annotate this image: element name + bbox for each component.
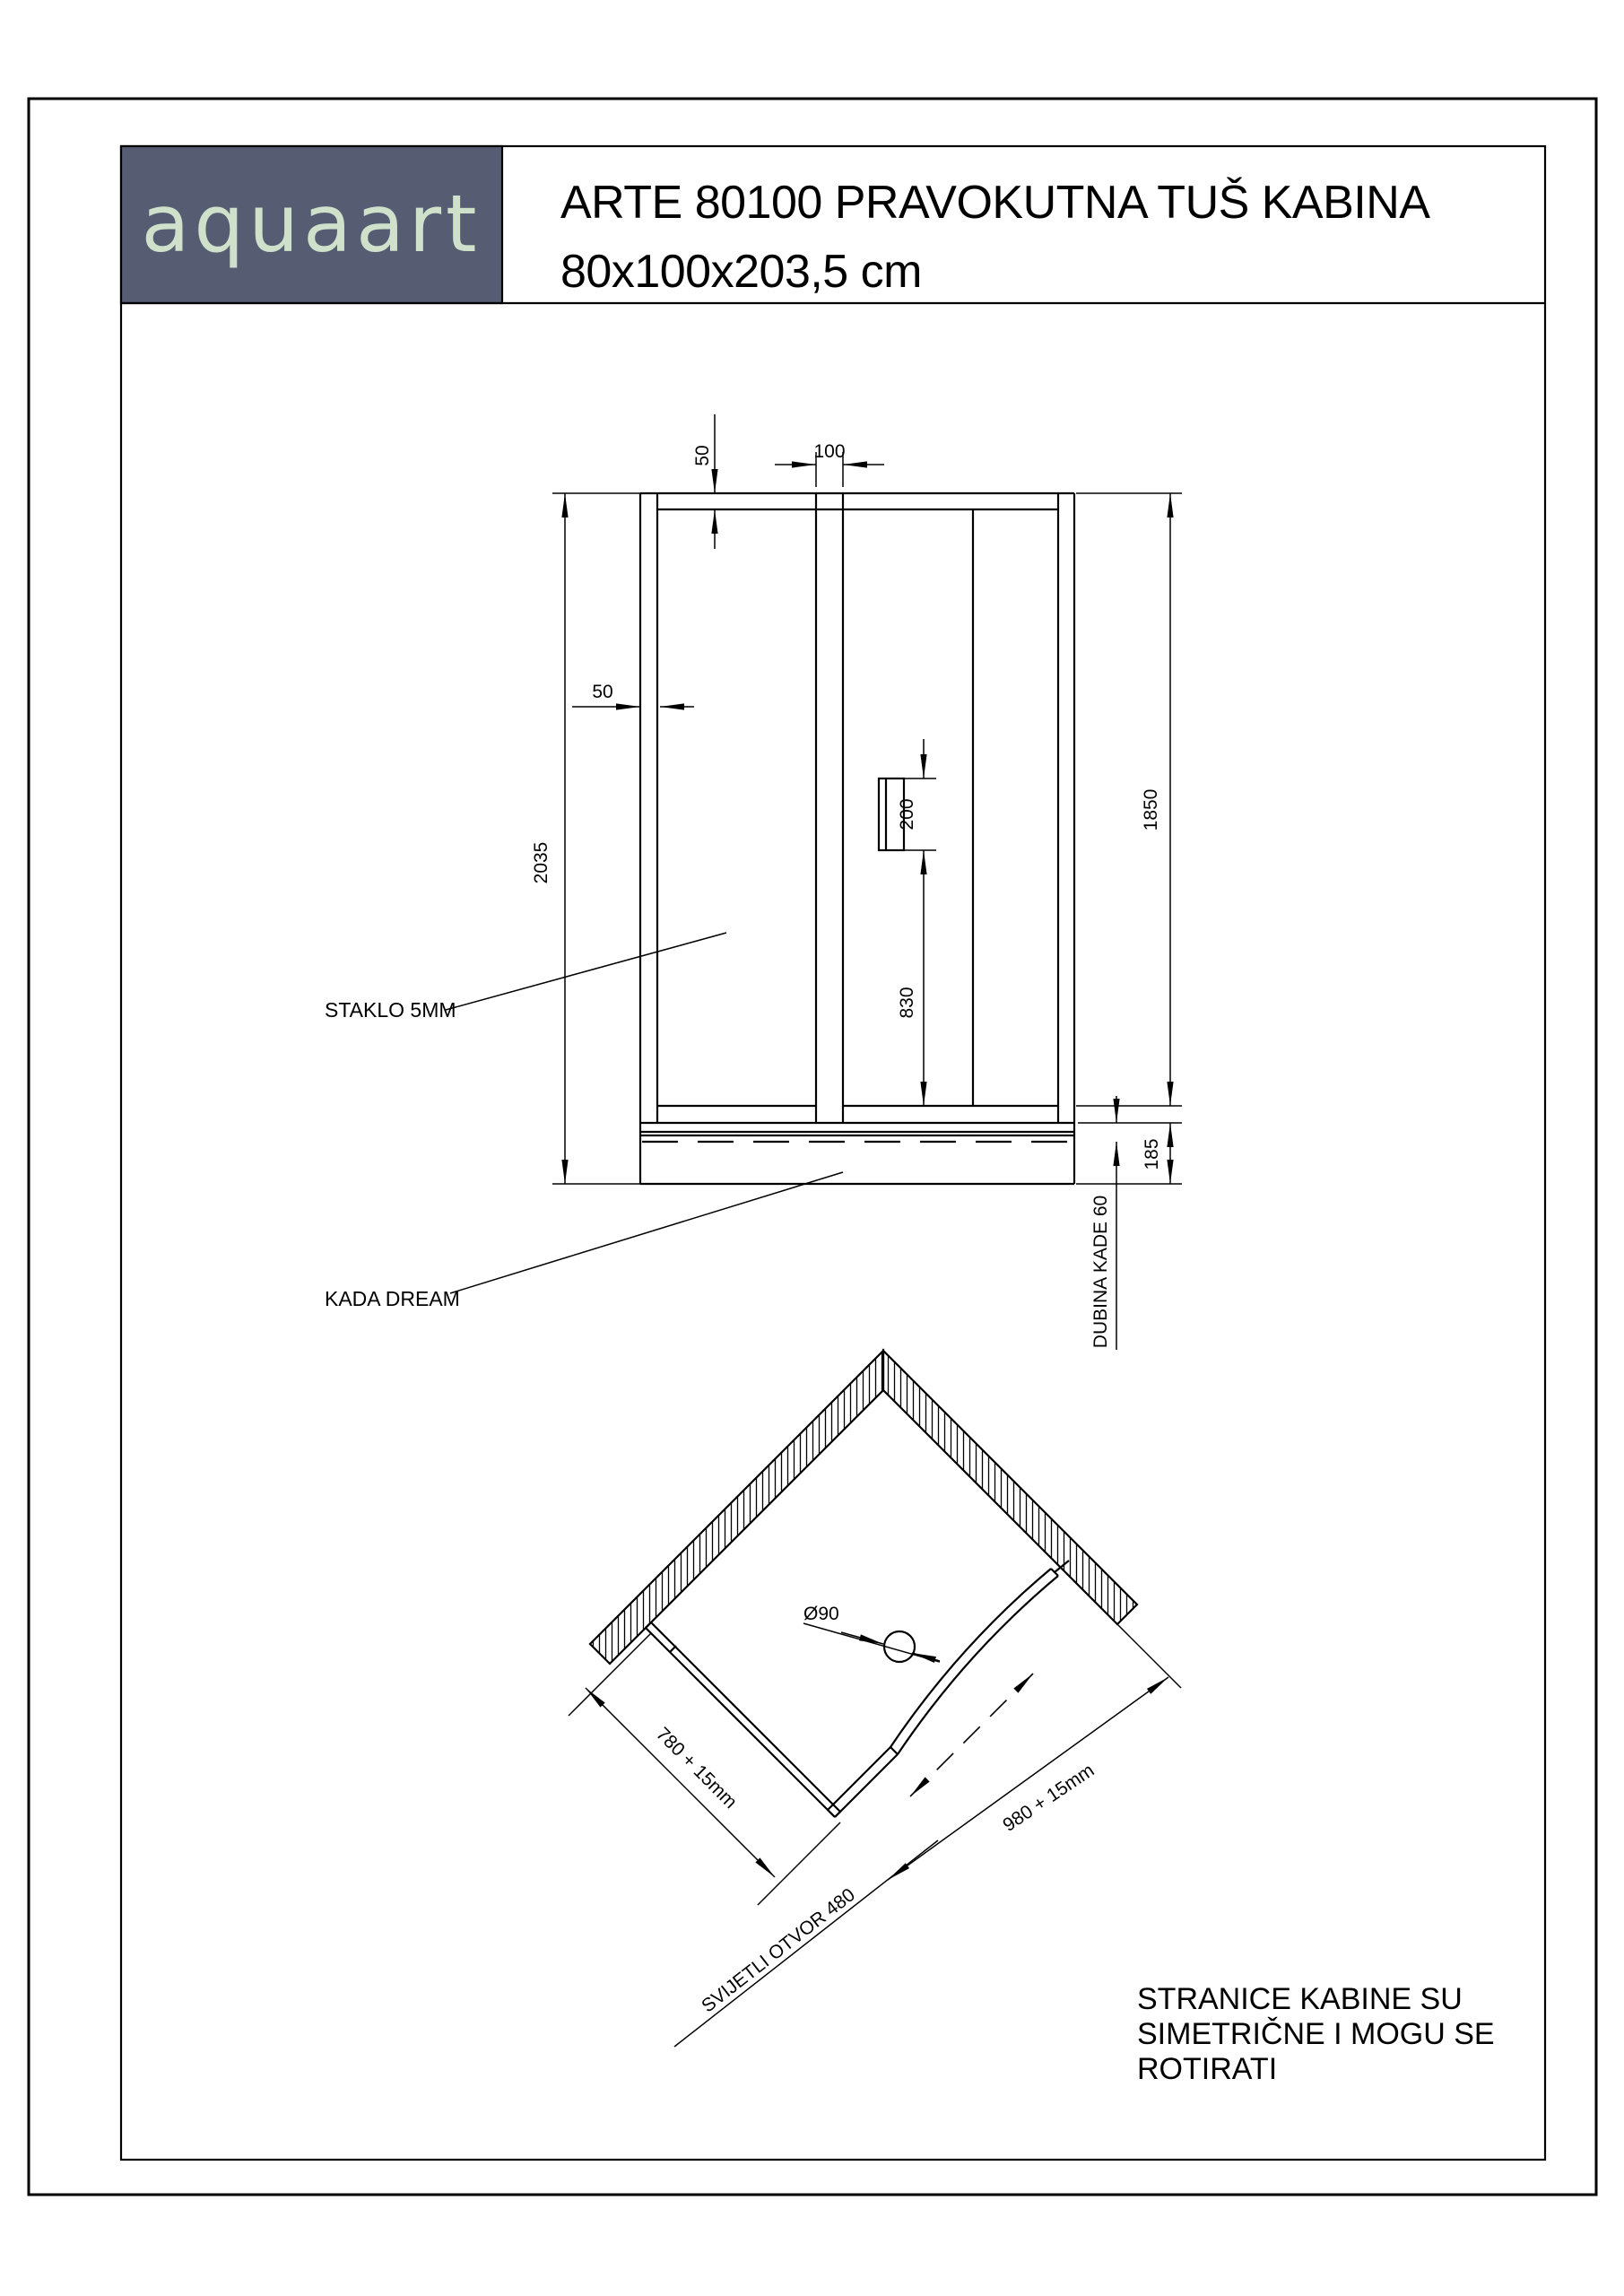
label-drain: Ø90 — [803, 1604, 839, 1624]
dim-profile-width: 50 — [572, 682, 694, 707]
dim-side-short: 780 + 15mm — [569, 1633, 840, 1905]
dim-label-1850: 1850 — [1141, 789, 1161, 831]
page-title: ARTE 80100 PRAVOKUTNA TUŠ KABINA — [560, 177, 1430, 229]
dim-handle-height: 830 — [897, 850, 924, 1106]
dim-label-left-50: 50 — [592, 682, 612, 702]
front-elevation-drawing: 2035 1850 185 50 100 — [325, 414, 1182, 1350]
dim-tray-height: 185 — [1076, 1123, 1182, 1184]
tray-callout: KADA DREAM — [325, 1172, 843, 1310]
drain-dimension: Ø90 — [803, 1604, 940, 1662]
label-opening: SVIJETLI OTVOR 480 — [698, 1884, 859, 2016]
dim-frame-top: 50 — [692, 414, 715, 549]
note-line-3: ROTIRATI — [1137, 2052, 1277, 2086]
note-line-2: SIMETRIČNE I MOGU SE — [1137, 2017, 1495, 2051]
dim-side-long: 980 + 15mm — [888, 1624, 1181, 1880]
drain-circle — [884, 1631, 915, 1662]
logo-text: aquaart — [141, 178, 481, 270]
spec-sheet-page: aquaart ARTE 80100 PRAVOKUTNA TUŠ KABINA… — [0, 0, 1624, 2296]
dim-label-830: 830 — [897, 987, 917, 1018]
door-slide-direction-arrow — [910, 1674, 1033, 1796]
dim-label-185: 185 — [1142, 1138, 1162, 1170]
wall-left-hatched — [590, 1351, 883, 1664]
wall-right-hatched — [883, 1351, 1137, 1624]
dim-glass-height: 1850 — [1076, 493, 1182, 1106]
title-block: aquaart ARTE 80100 PRAVOKUTNA TUŠ KABINA… — [121, 146, 1545, 303]
dim-label-980: 980 + 15mm — [999, 1760, 1098, 1836]
technical-drawing: aquaart ARTE 80100 PRAVOKUTNA TUŠ KABINA… — [0, 0, 1624, 2296]
dim-label-2035: 2035 — [531, 842, 551, 884]
label-tray: KADA DREAM — [325, 1287, 460, 1310]
plan-cabin-edges — [646, 1622, 898, 1817]
glass-leader-line — [446, 933, 726, 1010]
dim-label-200: 200 — [897, 798, 917, 830]
note-line-1: STRANICE KABINE SU — [1137, 1982, 1463, 2016]
glass-callout: STAKLO 5MM — [325, 933, 726, 1022]
dim-mullion: 100 — [775, 441, 884, 487]
page-subtitle: 80x100x203,5 cm — [560, 246, 922, 298]
dim-total-height: 2035 — [531, 493, 642, 1184]
dim-label-100: 100 — [813, 441, 845, 462]
cabin-structure-lines — [640, 493, 1074, 1184]
opening-leader-line — [674, 1840, 938, 2047]
plan-view-drawing: Ø90 780 + 15mm 980 + 15mm SVIJETLI OTVOR… — [569, 1351, 1181, 2047]
dim-label-top-50: 50 — [692, 445, 713, 465]
page-border — [29, 99, 1596, 2195]
dim-tray-depth: DUBINA KADE 60 — [1090, 1096, 1116, 1350]
curved-door — [890, 1561, 1069, 1754]
symmetry-note: STRANICE KABINE SU SIMETRIČNE I MOGU SE … — [1137, 1982, 1495, 2086]
opening-callout: SVIJETLI OTVOR 480 — [674, 1840, 938, 2047]
label-glass: STAKLO 5MM — [325, 998, 456, 1022]
tray-leader-line — [450, 1172, 843, 1293]
label-tray-depth: DUBINA KADE 60 — [1090, 1196, 1111, 1348]
